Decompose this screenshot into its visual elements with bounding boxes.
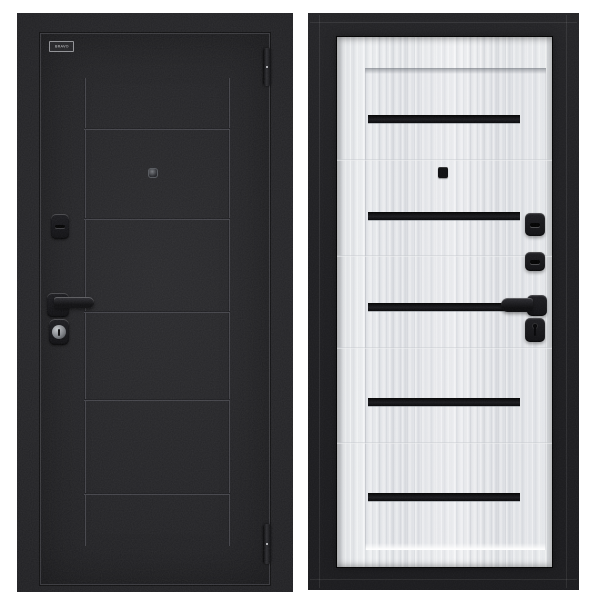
hinge-bottom xyxy=(263,524,271,564)
brand-logo-plate: BRAVO xyxy=(49,41,74,52)
key-cylinder-plate xyxy=(49,319,69,345)
keyhole-slot xyxy=(534,327,536,336)
frame-highlight xyxy=(319,15,320,588)
frame-highlight xyxy=(310,22,577,23)
wood-seam xyxy=(337,442,552,444)
panel-bevel-bottom xyxy=(365,543,546,550)
peephole-icon xyxy=(438,167,448,178)
door-handle-lever xyxy=(501,298,533,312)
glass-insert xyxy=(368,493,520,501)
panel-seam-left xyxy=(365,68,366,550)
lock-thumbturn-upper xyxy=(525,213,545,236)
door-leaf-exterior: BRAVO xyxy=(40,33,270,585)
wood-seam xyxy=(337,255,552,257)
keyhole-escutcheon xyxy=(525,318,545,342)
horizontal-groove xyxy=(84,311,230,313)
horizontal-groove xyxy=(84,493,230,495)
door-photo-exterior: BRAVO xyxy=(17,13,293,592)
door-handle-lever xyxy=(54,297,94,308)
door-photo-interior xyxy=(308,13,579,590)
peephole-icon xyxy=(148,168,158,178)
horizontal-groove xyxy=(84,218,230,220)
keyhole-icon xyxy=(58,329,60,336)
frame-highlight xyxy=(566,15,567,588)
deadbolt-thumbturn-plate xyxy=(51,214,69,239)
glass-insert xyxy=(368,115,520,123)
glass-insert xyxy=(368,303,520,311)
horizontal-groove xyxy=(84,128,230,130)
horizontal-groove xyxy=(84,399,230,401)
glass-insert xyxy=(368,212,520,220)
wood-seam xyxy=(337,347,552,349)
panel-bevel-top xyxy=(365,68,546,74)
frame-highlight xyxy=(310,579,577,580)
wood-seam xyxy=(337,159,552,161)
glass-insert xyxy=(368,398,520,406)
hinge-top xyxy=(263,48,271,86)
lock-thumbturn-lower xyxy=(525,252,545,271)
brand-logo-text: BRAVO xyxy=(55,44,69,48)
door-leaf-interior xyxy=(337,37,552,567)
